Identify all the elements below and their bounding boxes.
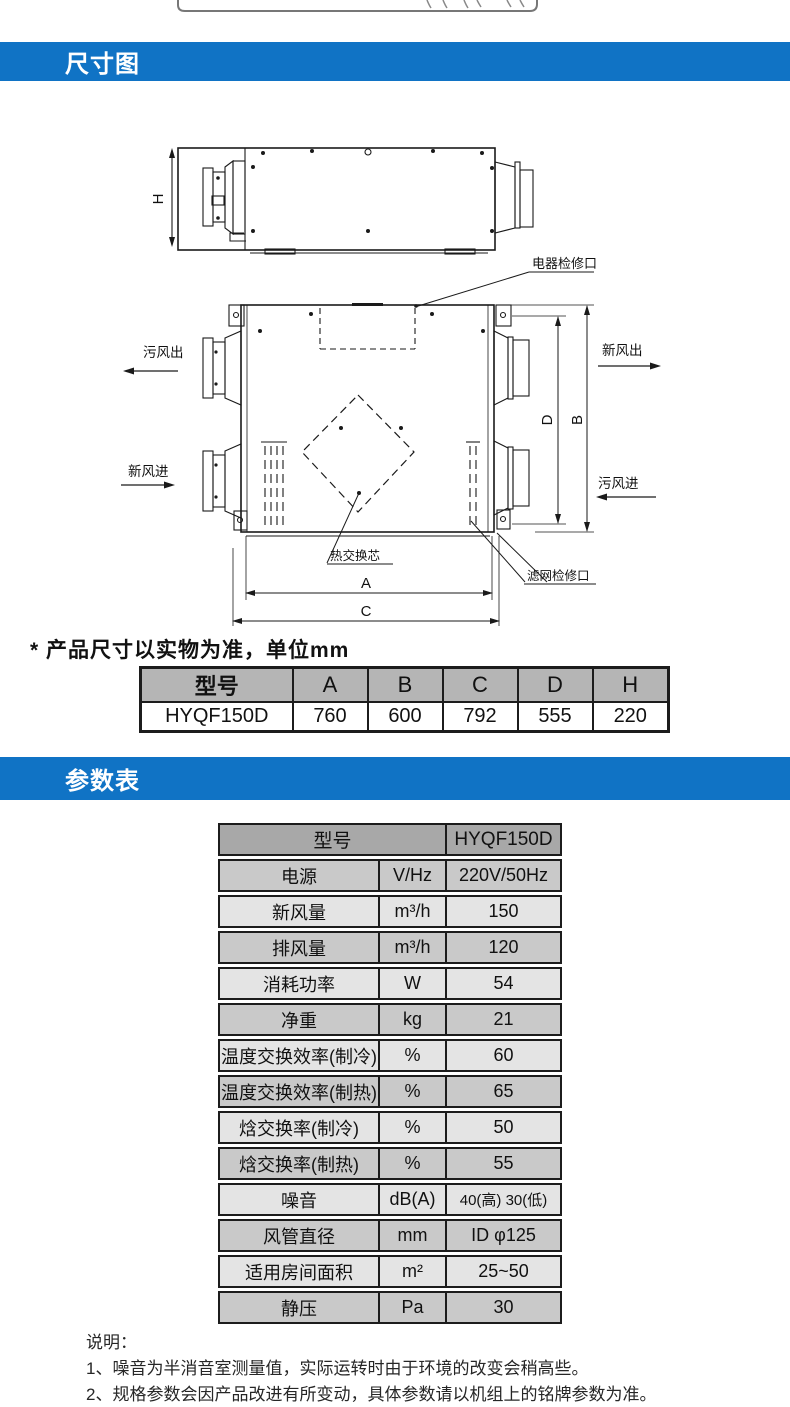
param-unit: % (380, 1075, 447, 1108)
param-unit: m³/h (380, 931, 447, 964)
main-view-outline (203, 305, 529, 537)
foul-air-in-label: 污风进 (598, 476, 639, 491)
heat-core-label: 热交换芯 (330, 548, 380, 563)
param-unit: Pa (380, 1291, 447, 1324)
b-dim-label: B (569, 415, 586, 425)
section-header-dimensions-label: 尺寸图 (0, 44, 140, 79)
dim-col-header-model: 型号 (141, 668, 293, 703)
param-value: 50 (447, 1111, 562, 1144)
param-label: 排风量 (218, 931, 380, 964)
param-label: 净重 (218, 1003, 380, 1036)
param-value: 120 (447, 931, 562, 964)
param-row: 风管直径 mm ID φ125 (218, 1219, 562, 1252)
dim-col-header-b: B (368, 668, 443, 703)
filter-access-label: 滤网检修口 (527, 568, 590, 583)
param-unit: mm (380, 1219, 447, 1252)
main-view-screws (214, 312, 485, 499)
param-unit: m³/h (380, 895, 447, 928)
param-unit: m² (380, 1255, 447, 1288)
airflow-arrows (121, 366, 656, 497)
param-row: 温度交换效率(制冷) % 60 (218, 1039, 562, 1072)
param-value: ID φ125 (447, 1219, 562, 1252)
param-unit: dB(A) (380, 1183, 447, 1216)
param-value: 55 (447, 1147, 562, 1180)
h-dim-label: H (150, 194, 167, 205)
param-label: 温度交换效率(制冷) (218, 1039, 380, 1072)
param-model-value: HYQF150D (447, 823, 562, 856)
dim-value-model: HYQF150D (141, 702, 293, 732)
param-label: 风管直径 (218, 1219, 380, 1252)
param-unit: kg (380, 1003, 447, 1036)
a-dim-label: A (361, 575, 371, 592)
param-row: 静压 Pa 30 (218, 1291, 562, 1324)
param-label: 新风量 (218, 895, 380, 928)
param-label: 适用房间面积 (218, 1255, 380, 1288)
top-sketch (0, 0, 790, 16)
dim-value-a: 760 (293, 702, 368, 732)
dim-col-header-c: C (443, 668, 518, 703)
dimension-table: 型号 A B C D H HYQF150D 760 600 792 555 22… (139, 666, 670, 733)
param-value: 60 (447, 1039, 562, 1072)
page-root: 尺寸图 (0, 0, 790, 1407)
param-unit: V/Hz (380, 859, 447, 892)
section-header-dimensions: 尺寸图 (0, 42, 790, 81)
param-model-label: 型号 (218, 823, 447, 856)
param-label: 焓交换率(制冷) (218, 1111, 380, 1144)
side-view-outline (172, 148, 533, 254)
param-value: 65 (447, 1075, 562, 1108)
footer-notes: 说明： 1、噪音为半消音室测量值，实际运转时由于环境的改变会稍高些。 2、规格参… (86, 1330, 656, 1407)
param-unit: % (380, 1147, 447, 1180)
dim-col-header-a: A (293, 668, 368, 703)
param-row: 排风量 m³/h 120 (218, 931, 562, 964)
fresh-air-in-label: 新风进 (128, 464, 169, 479)
param-row: 焓交换率(制冷) % 50 (218, 1111, 562, 1144)
product-note: * 产品尺寸以实物为准，单位mm (30, 634, 349, 664)
dim-col-header-h: H (593, 668, 669, 703)
notes-title: 说明： (86, 1330, 656, 1356)
param-row: 净重 kg 21 (218, 1003, 562, 1036)
note-line-1: 1、噪音为半消音室测量值，实际运转时由于环境的改变会稍高些。 (86, 1356, 656, 1382)
note-line-2: 2、规格参数会因产品改进有所变动，具体参数请以机组上的铭牌参数为准。 (86, 1382, 656, 1407)
dim-value-d: 555 (518, 702, 593, 732)
dim-value-c: 792 (443, 702, 518, 732)
param-value: 30 (447, 1291, 562, 1324)
param-value: 150 (447, 895, 562, 928)
param-unit: W (380, 967, 447, 1000)
airflow-arrowheads (123, 363, 661, 501)
dimensions-drawing: 电器检修口 H (0, 90, 790, 632)
param-label: 电源 (218, 859, 380, 892)
param-value: 40(高) 30(低) (447, 1183, 562, 1216)
param-unit: % (380, 1039, 447, 1072)
parameter-table: 型号 HYQF150D 电源 V/Hz 220V/50Hz 新风量 m³/h 1… (218, 820, 562, 1327)
c-dim-label: C (361, 603, 372, 620)
electric-access-callout (415, 272, 594, 307)
dim-value-b: 600 (368, 702, 443, 732)
param-row: 焓交换率(制热) % 55 (218, 1147, 562, 1180)
section-header-params: 参数表 (0, 757, 790, 800)
dimension-table-value-row: HYQF150D 760 600 792 555 220 (141, 702, 669, 732)
param-label: 静压 (218, 1291, 380, 1324)
dim-col-header-d: D (518, 668, 593, 703)
param-label: 焓交换率(制热) (218, 1147, 380, 1180)
param-unit: % (380, 1111, 447, 1144)
d-dim-label: D (539, 414, 556, 425)
param-row: 温度交换效率(制热) % 65 (218, 1075, 562, 1108)
param-row: 新风量 m³/h 150 (218, 895, 562, 928)
param-row-model: 型号 HYQF150D (218, 823, 562, 856)
param-value: 54 (447, 967, 562, 1000)
param-value: 25~50 (447, 1255, 562, 1288)
param-value: 21 (447, 1003, 562, 1036)
param-value: 220V/50Hz (447, 859, 562, 892)
param-label: 噪音 (218, 1183, 380, 1216)
param-label: 温度交换效率(制热) (218, 1075, 380, 1108)
dim-value-h: 220 (593, 702, 669, 732)
dimension-table-header-row: 型号 A B C D H (141, 668, 669, 703)
param-row: 噪音 dB(A) 40(高) 30(低) (218, 1183, 562, 1216)
electric-access-label: 电器检修口 (532, 256, 597, 271)
param-label: 消耗功率 (218, 967, 380, 1000)
param-row: 适用房间面积 m² 25~50 (218, 1255, 562, 1288)
fresh-air-out-label: 新风出 (602, 343, 643, 358)
section-header-params-label: 参数表 (0, 761, 140, 796)
foul-air-out-label: 污风出 (143, 345, 184, 360)
param-row: 电源 V/Hz 220V/50Hz (218, 859, 562, 892)
param-row: 消耗功率 W 54 (218, 967, 562, 1000)
